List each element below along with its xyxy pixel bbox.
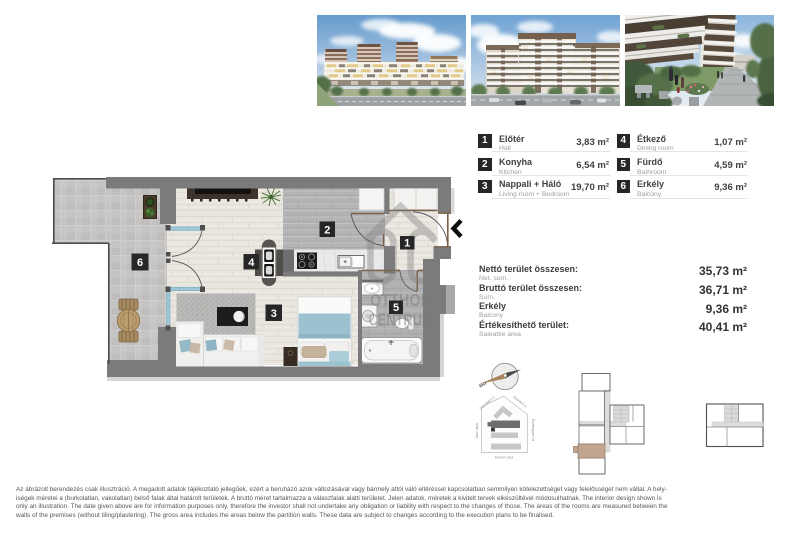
- svg-text:Tomori utca: Tomori utca: [495, 456, 514, 460]
- svg-text:Jász utca: Jász utca: [475, 423, 479, 438]
- svg-text:2: 2: [324, 224, 330, 236]
- svg-text:4: 4: [248, 257, 255, 269]
- svg-text:1: 1: [404, 238, 410, 250]
- svg-text:5: 5: [393, 302, 399, 314]
- svg-text:6: 6: [137, 257, 143, 269]
- svg-text:Esztergomi út: Esztergomi út: [531, 419, 535, 441]
- svg-text:3: 3: [271, 308, 277, 320]
